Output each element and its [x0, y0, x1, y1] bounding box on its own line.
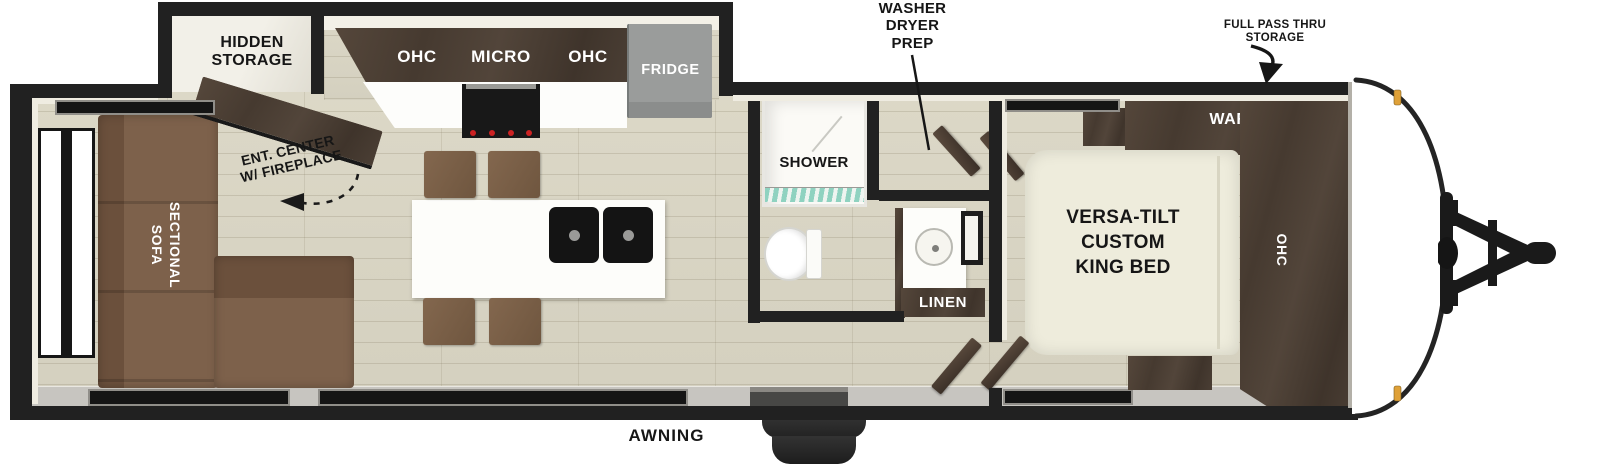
vanity-sink	[915, 228, 953, 266]
wall-bedroom-lower	[989, 388, 1002, 410]
window-bedroom-top	[1005, 99, 1120, 112]
window-bottom-bedroom	[1003, 389, 1133, 405]
range-stove	[462, 84, 540, 138]
dining-chair	[488, 151, 540, 198]
hidden-storage-callout: HIDDEN STORAGE	[167, 34, 337, 71]
kitchen-ohc-right-label: OHC	[556, 47, 620, 67]
sink-basin-right	[603, 207, 653, 263]
bed-headboard-cabinet	[1240, 93, 1354, 408]
wall-slide-right	[719, 2, 733, 96]
wall-bottom	[10, 406, 1358, 420]
washer-dryer-pointer-line	[900, 50, 940, 155]
window-rear-wall	[38, 128, 95, 358]
floorplan-canvas: FRIDGE LINEN WARD	[0, 0, 1600, 471]
linen-label: LINEN	[901, 288, 985, 317]
wall-bathroom-left	[748, 90, 760, 323]
awning-callout: AWNING	[604, 426, 729, 446]
lining-bedroom-left	[1002, 95, 1007, 340]
sink-drain	[623, 230, 634, 241]
clearance-light-bottom	[1394, 386, 1401, 401]
wall-bathroom-bottom	[756, 311, 904, 322]
range-knobs	[470, 130, 476, 136]
window-behind-sofa	[55, 100, 215, 115]
fridge: FRIDGE	[627, 24, 712, 118]
dining-chair	[423, 298, 475, 345]
vanity-drain	[932, 245, 939, 252]
wall-bedroom-upper	[989, 90, 1002, 342]
toilet-tank	[806, 229, 822, 279]
wall-top-rear	[10, 84, 162, 98]
sink-basin-left	[549, 207, 599, 263]
island-sink	[549, 207, 655, 264]
dining-chair	[424, 151, 476, 198]
full-pass-thru-callout: FULL PASS THRU STORAGE	[1190, 19, 1360, 45]
wall-shower-divider	[867, 90, 879, 200]
sectional-sofa-chaise	[214, 256, 354, 388]
bathroom-mirror	[961, 211, 983, 265]
linen-cabinet: LINEN	[901, 288, 985, 317]
wall-left-rear	[10, 84, 32, 420]
full-pass-thru-arrow	[1235, 44, 1285, 86]
sofa-label: SECTIONAL SOFA	[143, 150, 183, 340]
clearance-light-top	[1394, 90, 1401, 105]
sink-drain	[569, 230, 580, 241]
shower-label: SHOWER	[760, 154, 868, 171]
window-bottom-kitchen	[318, 389, 688, 406]
bedroom-ohc-label: OHC	[1266, 222, 1290, 278]
shower-tile-shelf	[765, 187, 864, 202]
window-bottom-living	[88, 389, 290, 406]
trailer-hitch	[1438, 178, 1563, 328]
wall-washer-closet-bottom	[879, 190, 999, 201]
bed-pillow-seam	[1217, 156, 1220, 349]
kitchen-ohc-left-label: OHC	[385, 47, 449, 67]
bed-foot-bench	[1128, 356, 1212, 390]
range-vent	[466, 84, 536, 89]
mirror-glass	[965, 216, 978, 260]
ent-center-arrow	[272, 168, 372, 218]
entry-step-lower	[772, 436, 856, 464]
vanity-counter	[903, 208, 966, 292]
shower-glass-door	[811, 116, 842, 153]
wall-top-slide	[158, 2, 733, 16]
fridge-label: FRIDGE	[629, 62, 712, 78]
shower-stall	[762, 95, 867, 207]
dining-chair	[489, 298, 541, 345]
king-bed-label: VERSA-TILT CUSTOM KING BED	[1030, 205, 1216, 280]
bedroom-overhead-small	[1083, 108, 1127, 146]
kitchen-micro-label: MICRO	[465, 47, 537, 67]
washer-dryer-prep-callout: WASHER DRYER PREP	[840, 0, 985, 52]
